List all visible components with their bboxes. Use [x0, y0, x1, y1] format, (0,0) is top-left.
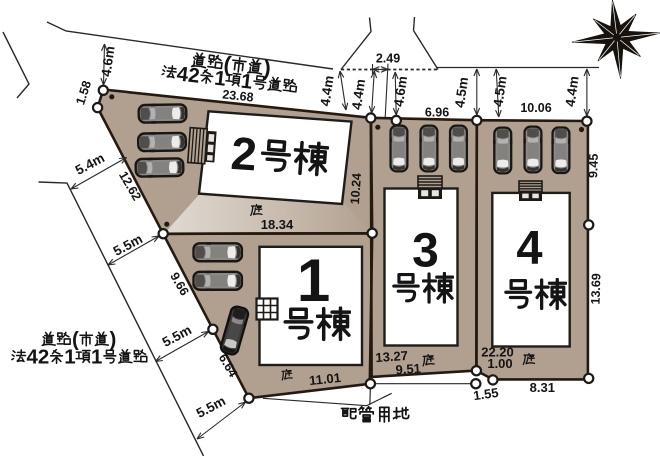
svg-text:9.45: 9.45 [586, 153, 601, 178]
svg-text:10.24: 10.24 [348, 173, 364, 205]
svg-text:18.34: 18.34 [261, 217, 294, 232]
svg-text:42: 42 [176, 62, 201, 87]
svg-text:1: 1 [297, 247, 330, 314]
svg-text:4: 4 [516, 221, 542, 274]
svg-text:1: 1 [91, 346, 102, 369]
svg-text:2: 2 [229, 127, 258, 181]
svg-text:): ) [110, 328, 117, 351]
svg-text:9.51: 9.51 [395, 361, 421, 378]
svg-text:6.96: 6.96 [425, 106, 449, 120]
svg-text:13.69: 13.69 [588, 273, 603, 305]
svg-text:2.49: 2.49 [376, 52, 400, 66]
svg-text:8.31: 8.31 [530, 380, 555, 395]
svg-text:3: 3 [412, 225, 439, 278]
svg-text:1: 1 [64, 346, 75, 369]
svg-text:42: 42 [27, 346, 50, 369]
svg-text:10.06: 10.06 [520, 101, 551, 115]
svg-text:1.00: 1.00 [487, 356, 512, 371]
